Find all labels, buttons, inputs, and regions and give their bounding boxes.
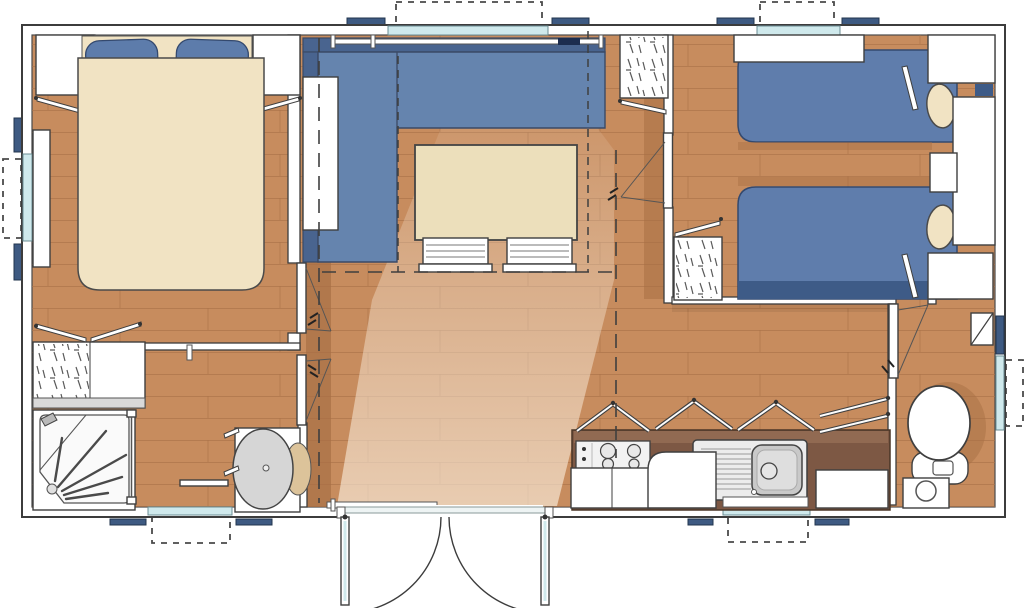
shutter-vent xyxy=(717,18,754,25)
hinge-dot xyxy=(618,99,622,103)
living-area xyxy=(303,35,605,272)
shutter-vent xyxy=(552,18,589,25)
towel-rail xyxy=(180,480,228,486)
wall-hook xyxy=(187,345,192,360)
wc-window xyxy=(996,356,1004,430)
washbasin-drain xyxy=(263,465,269,471)
wardrobe-hanging-space xyxy=(676,239,720,298)
base-cabinet xyxy=(816,470,888,508)
dining-table xyxy=(415,145,577,240)
awning-outline-left xyxy=(3,159,21,238)
hinge-dot xyxy=(34,96,38,100)
door-leaf-glass xyxy=(344,521,347,601)
twin-bedroom-door xyxy=(664,133,673,208)
hob xyxy=(576,441,650,470)
bedside-table xyxy=(930,153,957,192)
twin-window xyxy=(757,26,840,35)
door-swing-arc xyxy=(449,517,545,608)
mattress-corner xyxy=(975,84,993,96)
shower-door-pivot xyxy=(127,497,136,504)
windowsill xyxy=(723,497,808,507)
awning-outline-bathroom xyxy=(152,516,230,543)
bathroom-door xyxy=(297,355,306,425)
toilet-base-unit xyxy=(903,478,949,508)
entrance xyxy=(337,505,553,608)
fridge xyxy=(648,452,716,508)
wc-shutter-vent xyxy=(996,316,1004,354)
hinge-dot xyxy=(298,96,302,100)
windowsill-object xyxy=(558,38,580,45)
living-window xyxy=(388,26,548,35)
shutter-vent xyxy=(815,519,849,525)
bed-foot-cover xyxy=(738,281,957,299)
rail-post xyxy=(331,499,335,511)
rail-post xyxy=(331,35,335,48)
bathroom-window xyxy=(148,507,232,515)
wall-bathroom-divider xyxy=(143,343,300,350)
rail-post xyxy=(599,35,603,48)
master-window xyxy=(23,154,32,241)
wardrobe-hanging-space xyxy=(35,344,89,400)
shutter-vent xyxy=(842,18,879,25)
threshold xyxy=(345,507,545,513)
door-leaf-glass xyxy=(544,521,547,601)
single-bed-top xyxy=(738,50,957,142)
shutter-vent xyxy=(347,18,385,25)
shutter-vent xyxy=(688,519,713,525)
burner xyxy=(628,445,641,458)
shutter-vent xyxy=(14,118,22,152)
kitchen-wall-shadow xyxy=(672,304,888,312)
rail-post xyxy=(371,35,375,48)
wall-twin-lower xyxy=(664,207,673,303)
hinge-dot xyxy=(34,324,38,328)
floor-plan xyxy=(0,0,1024,608)
double-bed-duvet xyxy=(78,58,264,290)
hinge-dot xyxy=(138,322,142,326)
hinge-dot xyxy=(719,217,723,221)
burner xyxy=(601,444,616,459)
base-cabinet xyxy=(571,468,650,508)
sideboard xyxy=(303,77,338,230)
wall-shelf xyxy=(33,130,50,267)
shutter-vent xyxy=(236,519,272,525)
bed-shadow xyxy=(738,142,932,150)
shower-door-pivot xyxy=(127,410,136,417)
awning-outline-wc xyxy=(1006,360,1023,426)
top-shelf xyxy=(734,35,864,62)
chair xyxy=(503,238,576,272)
bed-shadow xyxy=(738,177,934,186)
headboard-cabinet xyxy=(928,35,995,83)
door-swing-arc xyxy=(345,517,441,608)
shutter-vent xyxy=(110,519,146,525)
toilet-bowl xyxy=(908,386,970,460)
wardrobe-base xyxy=(33,398,145,408)
wall-shelf xyxy=(953,97,995,245)
shower-drain xyxy=(47,484,57,494)
hinge-dot xyxy=(343,515,348,520)
sink-tap xyxy=(761,463,777,479)
chair xyxy=(419,238,492,272)
shutter-vent xyxy=(14,244,22,280)
wardrobe-hanging-space xyxy=(622,37,666,96)
awning-outline-kitchen xyxy=(728,516,808,542)
hinge-dot xyxy=(543,515,548,520)
headboard-cabinet xyxy=(928,253,993,299)
master-bedroom-door xyxy=(297,263,306,333)
sink-drain xyxy=(752,490,757,495)
